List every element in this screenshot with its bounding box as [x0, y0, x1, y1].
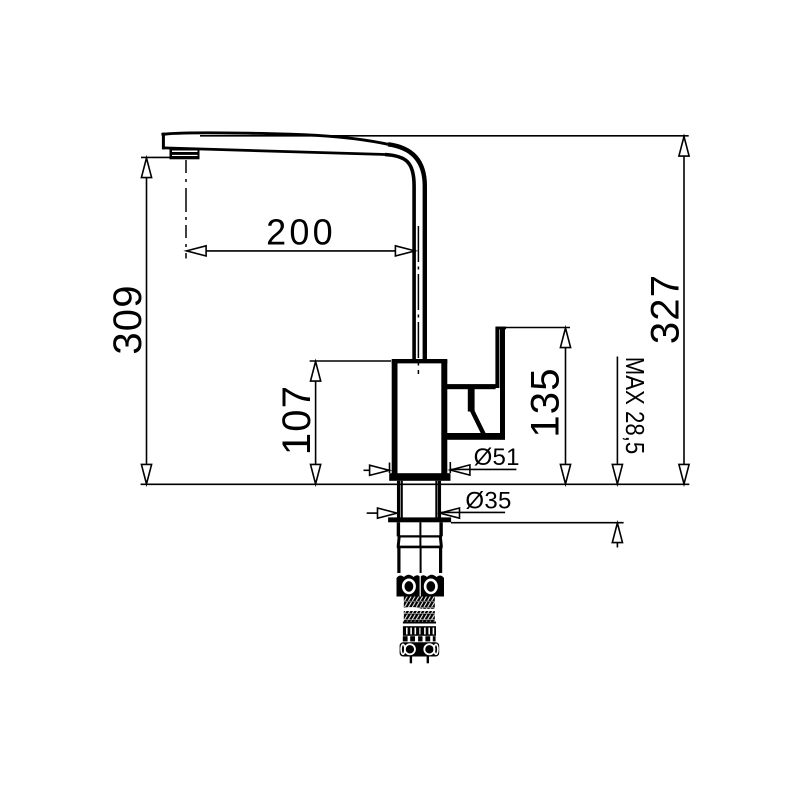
svg-text:135: 135 — [524, 367, 568, 437]
svg-text:327: 327 — [643, 274, 687, 344]
svg-text:Ø35: Ø35 — [465, 488, 511, 515]
svg-text:200: 200 — [266, 212, 336, 253]
svg-text:107: 107 — [275, 385, 319, 455]
svg-text:309: 309 — [106, 284, 150, 354]
svg-text:MAX 28,5: MAX 28,5 — [619, 357, 648, 455]
svg-text:Ø51: Ø51 — [474, 444, 520, 471]
